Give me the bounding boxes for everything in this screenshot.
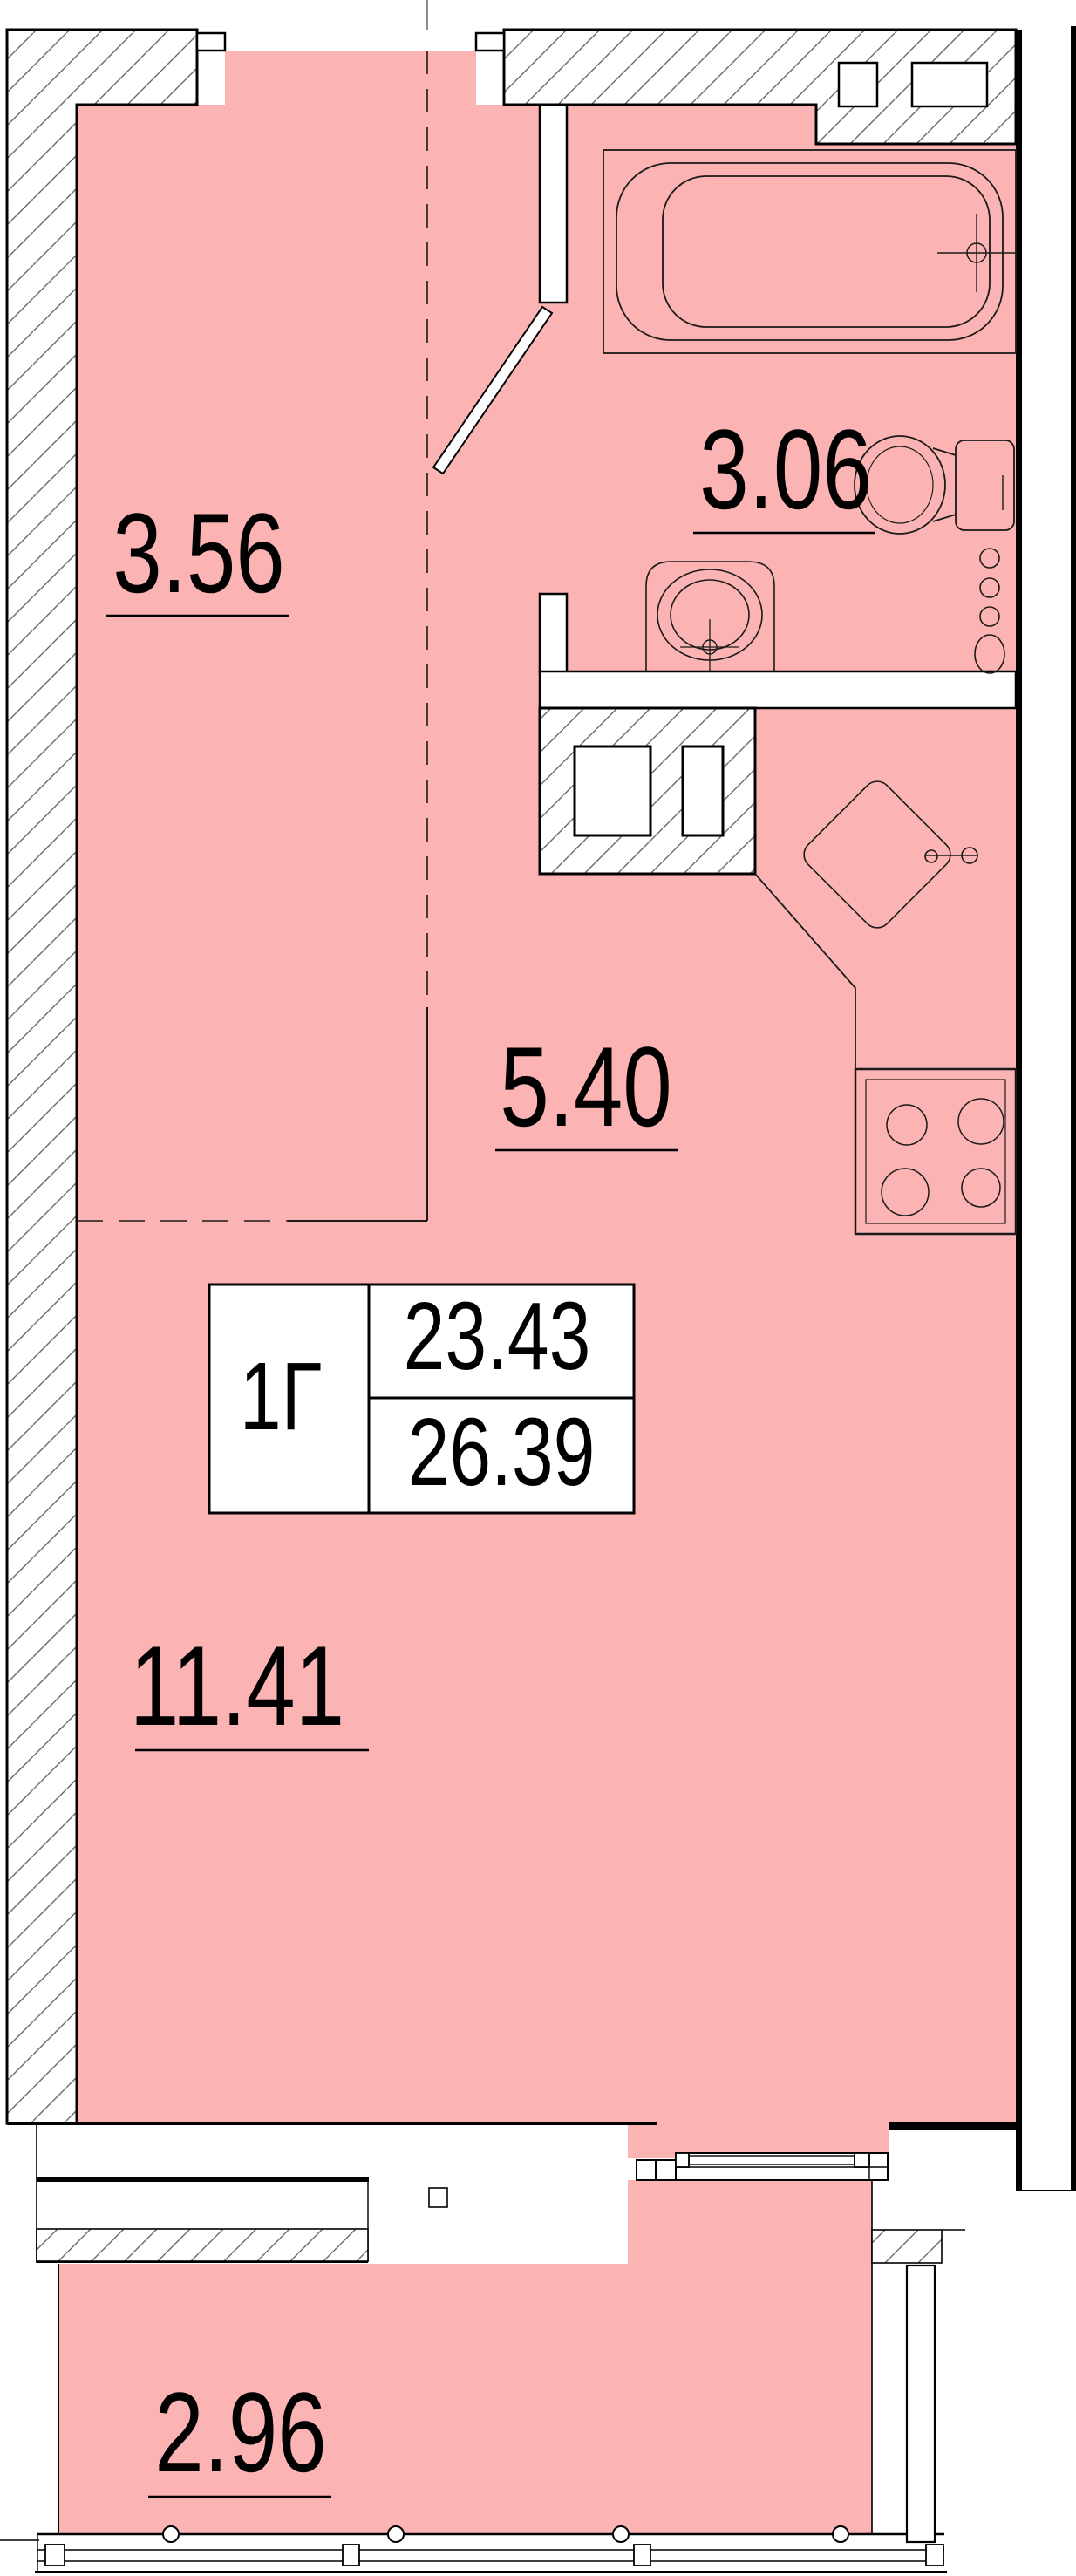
window-end-post <box>429 2188 447 2207</box>
bathroom-partition-top <box>540 105 567 303</box>
vent-shaft-large <box>912 63 987 106</box>
door-jamb-left <box>197 33 225 51</box>
neighbour-wall <box>1071 26 1076 2191</box>
bathroom-kitchen-wall <box>540 671 1016 708</box>
room-area-bathroom: 3.06 <box>699 412 871 526</box>
window-glass-line <box>37 2177 369 2182</box>
room-area-balcony: 2.96 <box>154 2375 326 2489</box>
balcony-door-leaf <box>637 2160 656 2180</box>
room-area-living: 11.41 <box>130 1629 344 1742</box>
unit-id-label: 1Г <box>240 1349 322 1445</box>
balcony-divider-hatch <box>872 2230 942 2263</box>
washing-machine-icon <box>575 746 650 835</box>
balcony-pillar <box>907 2266 935 2542</box>
floor-plan: 3.56 3.06 5.40 11.41 2.96 1Г 23.43 26.39 <box>0 0 1076 2576</box>
bottom-wall-line <box>7 2122 657 2125</box>
vent-shaft-small <box>839 63 877 106</box>
room-area-kitchen: 5.40 <box>500 1030 671 1143</box>
bathroom-partition-bottom <box>540 594 567 672</box>
entrance-opening <box>225 51 476 105</box>
room-area-hallway: 3.56 <box>112 496 284 610</box>
door-jamb-right <box>476 33 504 51</box>
window-sill-hatch <box>37 2229 368 2261</box>
total-area-value: 26.39 <box>408 1405 596 1501</box>
cabinet-icon <box>683 746 723 835</box>
living-area-value: 23.43 <box>404 1289 591 1385</box>
